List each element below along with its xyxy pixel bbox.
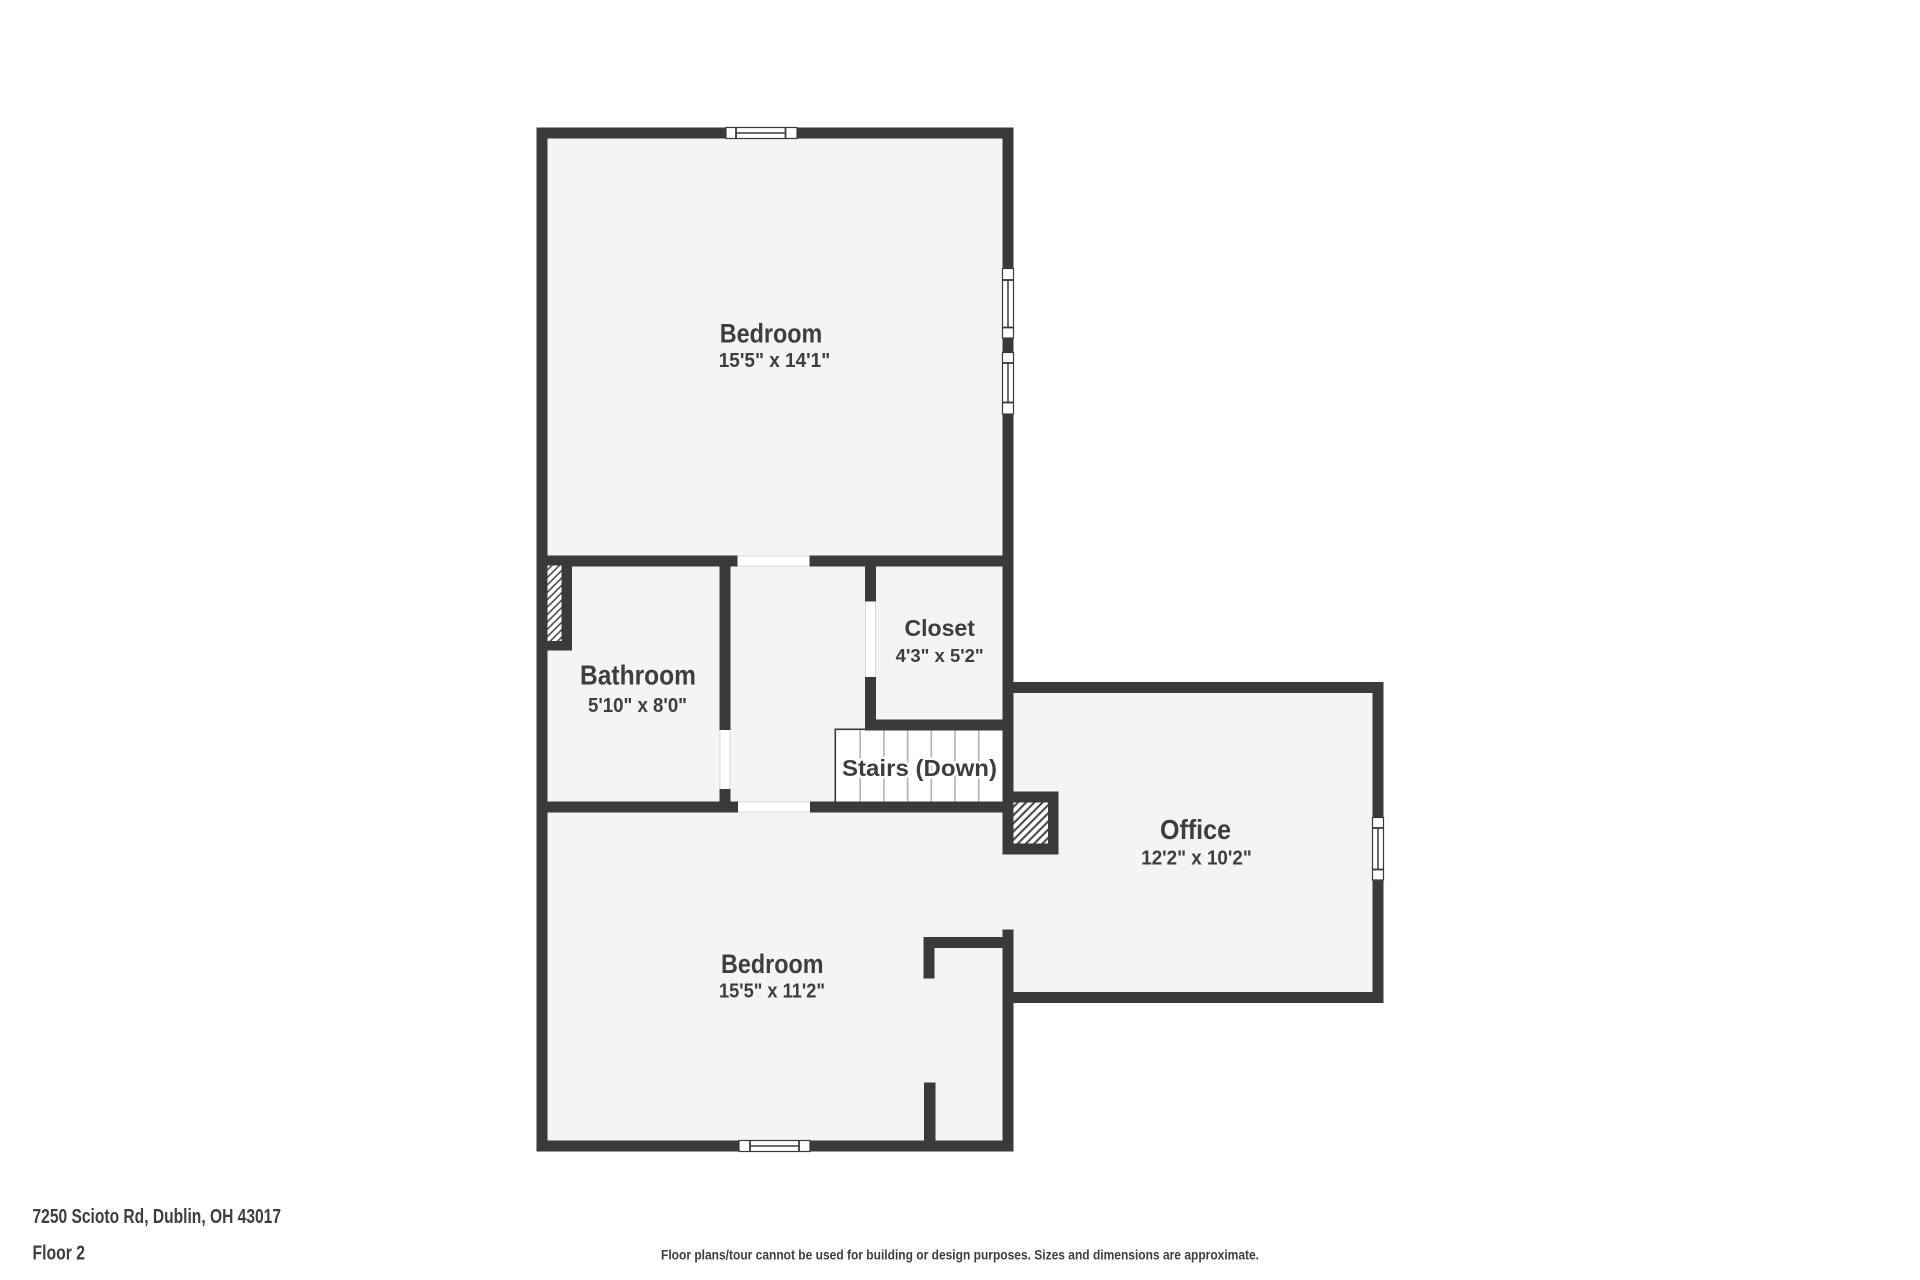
svg-text:15'5" x 11'2": 15'5" x 11'2": [719, 980, 825, 1002]
svg-text:Closet: Closet: [904, 615, 975, 641]
svg-text:4'3" x 5'2": 4'3" x 5'2": [896, 646, 984, 666]
svg-text:7250 Scioto Rd, Dublin, OH 430: 7250 Scioto Rd, Dublin, OH 43017: [33, 1206, 282, 1228]
svg-text:Office: Office: [1160, 814, 1231, 845]
svg-text:Bathroom: Bathroom: [580, 660, 696, 691]
svg-text:Floor 2: Floor 2: [33, 1243, 86, 1265]
svg-text:Bedroom: Bedroom: [720, 319, 823, 349]
svg-text:12'2" x 10'2": 12'2" x 10'2": [1141, 848, 1252, 870]
svg-text:5'10" x 8'0": 5'10" x 8'0": [588, 695, 687, 717]
svg-text:Stairs (Down): Stairs (Down): [842, 755, 997, 781]
svg-text:Floor plans/tour cannot be use: Floor plans/tour cannot be used for buil…: [661, 1247, 1259, 1262]
svg-text:15'5" x 14'1": 15'5" x 14'1": [719, 350, 831, 372]
svg-text:Bedroom: Bedroom: [721, 949, 824, 979]
